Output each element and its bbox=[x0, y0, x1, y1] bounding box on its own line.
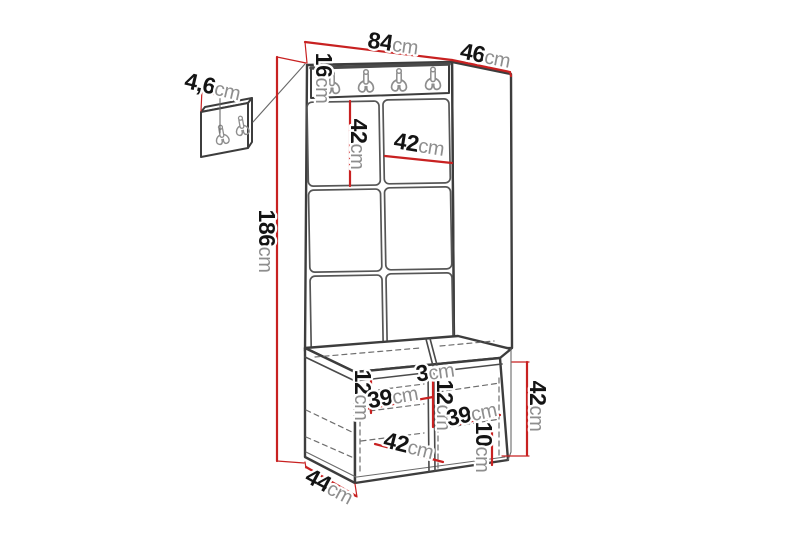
wall-panel-tile bbox=[310, 275, 383, 352]
wall-panel-tile bbox=[307, 101, 380, 186]
dim-label-bench-height: 42cm bbox=[525, 381, 551, 432]
hallway-unit bbox=[305, 62, 512, 352]
leader-line-mini-panel bbox=[253, 64, 305, 122]
dim-label-rail-height: 16cm bbox=[311, 53, 337, 104]
dim-tick bbox=[277, 57, 306, 463]
wall-panel-tile bbox=[384, 187, 451, 270]
bench-back-right-edge bbox=[508, 349, 511, 460]
unit-side-face bbox=[452, 62, 512, 349]
dim-label-panel-height: 42cm bbox=[346, 119, 372, 170]
dim-label-top-width: 84cm bbox=[366, 27, 420, 60]
wall-panel-tile bbox=[308, 189, 381, 272]
diagram-canvas: 84cm 46cm 16cm 42cm 42cm 186cm 4,6cm 3cm… bbox=[0, 0, 800, 533]
furniture-dimension-diagram: 84cm 46cm 16cm 42cm 42cm 186cm 4,6cm 3cm… bbox=[0, 0, 800, 533]
dim-label-mini-panel-depth: 4,6cm bbox=[182, 67, 243, 105]
mini-panel-front bbox=[201, 103, 248, 157]
dim-label-total-height: 186cm bbox=[254, 209, 280, 272]
dim-tick bbox=[305, 42, 307, 63]
dim-label-bottom-gap: 10cm bbox=[471, 422, 497, 473]
